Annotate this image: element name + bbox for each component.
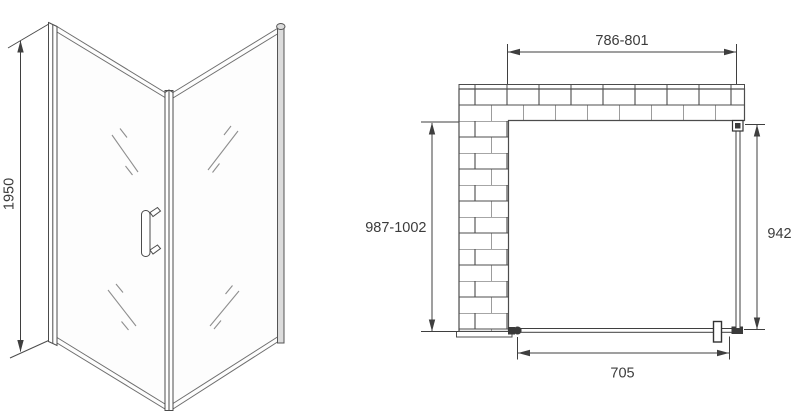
arrow-up-icon: [429, 123, 435, 135]
top-width-dimension-label: 786-801: [595, 33, 648, 49]
arrow-left-icon: [508, 49, 520, 56]
arrow-down-icon: [429, 320, 435, 332]
arrow-down-icon: [17, 340, 23, 352]
side-glass-panel: [173, 28, 279, 410]
left-wall-profile: [49, 23, 58, 346]
door-width-dimension: 705: [518, 337, 730, 382]
right-panel-dimension: 942: [744, 125, 792, 330]
drawing-canvas: 1950: [0, 0, 800, 415]
right-wall-profile: [277, 24, 285, 344]
plan-view: 786-801 987-1002 942 705: [365, 33, 791, 382]
top-width-dimension: 786-801: [508, 33, 737, 84]
arrow-down-icon: [754, 318, 760, 330]
brick-wall-body: [459, 89, 745, 332]
arrow-right-icon: [724, 49, 736, 56]
arrow-left-icon: [518, 350, 530, 357]
corner-post: [165, 90, 173, 411]
extension-line-bottom: [10, 339, 53, 359]
door-width-dimension-label: 705: [610, 366, 634, 382]
shower-enclosure-technical-drawing: 1950: [0, 0, 800, 415]
extension-line-top: [8, 23, 51, 48]
height-dimension: 1950: [2, 41, 24, 353]
height-dimension-label: 1950: [2, 178, 18, 210]
brick-wall: [457, 85, 745, 338]
side-panel-plan: [733, 121, 744, 329]
perspective-view: 1950: [2, 23, 285, 411]
arrow-right-icon: [717, 350, 729, 357]
left-depth-dimension: 987-1002: [365, 122, 458, 332]
door-panel-plan: [508, 322, 743, 343]
left-depth-dimension-label: 987-1002: [365, 220, 426, 236]
wall-end-cap: [457, 332, 513, 338]
arrow-up-icon: [754, 125, 760, 137]
right-panel-dimension-label: 942: [767, 226, 791, 242]
door-handle-plan: [714, 322, 722, 343]
door-pivot-hinge: [514, 327, 522, 335]
